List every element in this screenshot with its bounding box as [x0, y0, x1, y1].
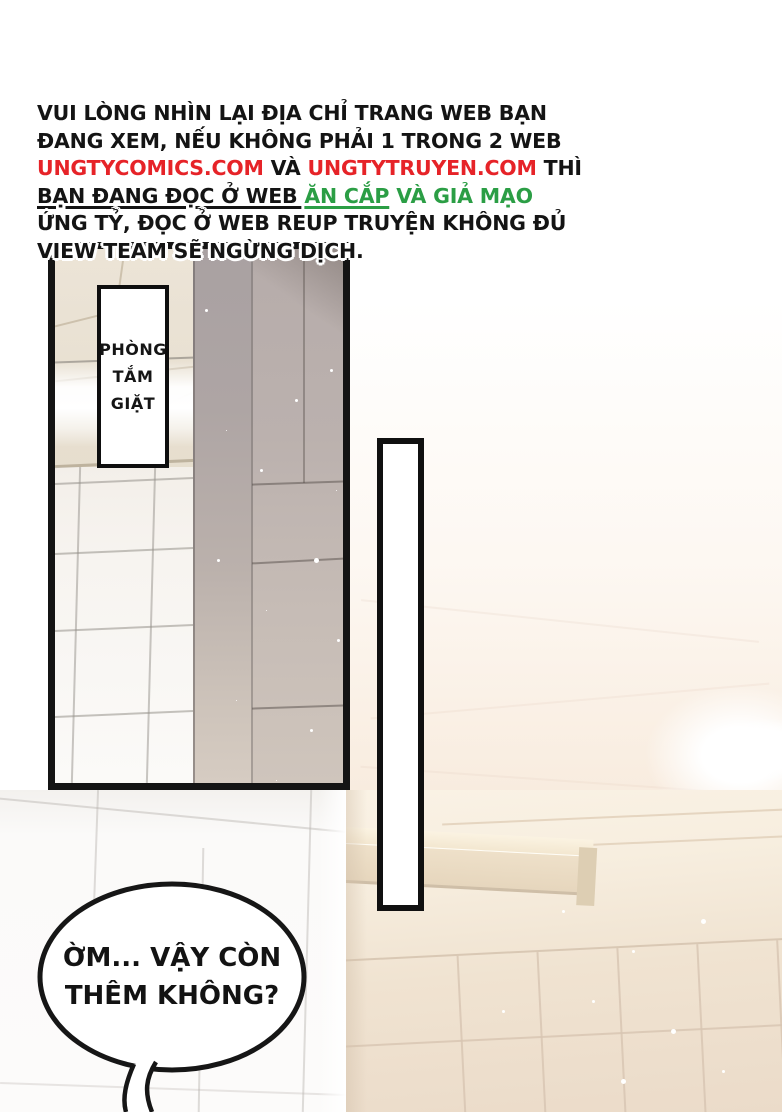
white-tile-section	[55, 467, 193, 783]
warning-line: VIEW TEAM SẼ NGỪNG DỊCH.	[37, 238, 597, 266]
warning-line: BẠN ĐANG ĐỌC Ở WEB ĂN CẮP VÀ GIẢ MẠO	[37, 183, 597, 211]
shelf-end-cap	[576, 847, 597, 906]
corner-shadow	[253, 249, 343, 379]
panel-interior: PHÒNG TẮM GIẶT	[55, 249, 343, 783]
room-sign: PHÒNG TẮM GIẶT	[97, 285, 169, 468]
warning-text-segment: ĐANG XEM, NẾU KHÔNG PHẢI 1 TRONG 2 WEB	[37, 129, 561, 153]
speech-bubble-text: ỜM... VẬY CÒN THÊM KHÔNG?	[62, 940, 282, 1015]
comic-page: PHÒNG TẮM GIẶT VUI LÒNG NHÌN LẠI ĐỊA CHỈ…	[0, 0, 782, 1112]
warning-text-segment: ỨNG TỶ, ĐỌC Ở WEB REUP TRUYỆN KHÔNG ĐỦ	[37, 211, 566, 235]
warning-line: UNGTYCOMICS.COM VÀ UNGTYTRUYEN.COM THÌ	[37, 155, 597, 183]
gray-wall	[253, 249, 343, 783]
beige-tile-grid	[297, 934, 782, 1112]
sparkle-dots	[562, 910, 565, 913]
warning-text-segment: VÀ GIẢ MẠO	[389, 184, 533, 208]
warning-line: ỨNG TỶ, ĐỌC Ở WEB REUP TRUYỆN KHÔNG ĐỦ	[37, 210, 597, 238]
room-sign-label: PHÒNG TẮM GIẶT	[99, 336, 167, 418]
warning-text-segment: UNGTYCOMICS.COM	[37, 156, 264, 180]
comic-panel: PHÒNG TẮM GIẶT	[48, 242, 350, 790]
warning-text-segment: UNGTYTRUYEN.COM	[308, 156, 537, 180]
warning-text-segment: THÌ	[537, 156, 582, 180]
warning-text-segment: ĂN CẮP	[304, 184, 389, 208]
gray-pillar	[193, 249, 253, 783]
warning-text-segment: VÀ	[264, 156, 308, 180]
warning-text-segment: VUI LÒNG NHÌN LẠI ĐỊA CHỈ TRANG WEB BẠN	[37, 101, 547, 125]
sparkle-dots	[205, 309, 208, 312]
warning-text-block: VUI LÒNG NHÌN LẠI ĐỊA CHỈ TRANG WEB BẠNĐ…	[37, 100, 597, 265]
narrow-white-panel	[377, 438, 424, 911]
warning-line: ĐANG XEM, NẾU KHÔNG PHẢI 1 TRONG 2 WEB	[37, 128, 597, 156]
warning-text-segment: BẠN ĐANG ĐỌC Ở WEB	[37, 184, 304, 208]
wall-plank-line	[442, 808, 782, 825]
warning-text-segment: VIEW TEAM SẼ NGỪNG DỊCH.	[37, 239, 364, 263]
warning-line: VUI LÒNG NHÌN LẠI ĐỊA CHỈ TRANG WEB BẠN	[37, 100, 597, 128]
